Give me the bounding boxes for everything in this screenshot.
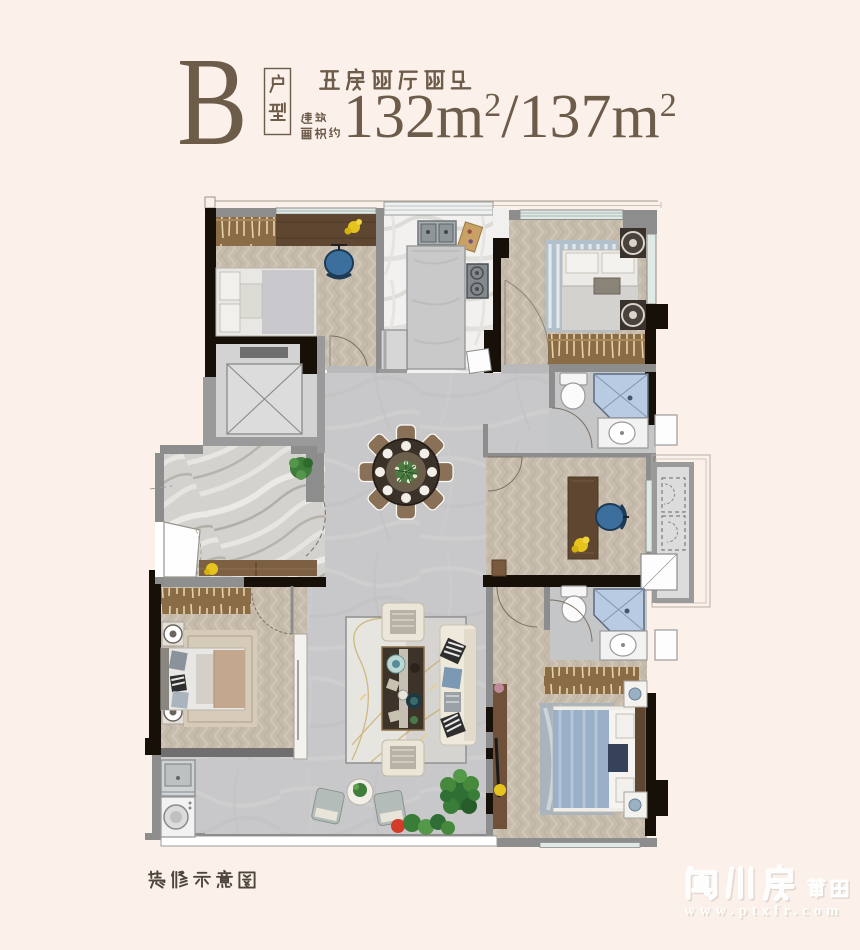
svg-text:132m2/137m2: 132m2/137m2 — [343, 83, 677, 151]
svg-text:www.ptxfr.com: www.ptxfr.com — [684, 903, 843, 919]
svg-text:B: B — [177, 32, 248, 172]
